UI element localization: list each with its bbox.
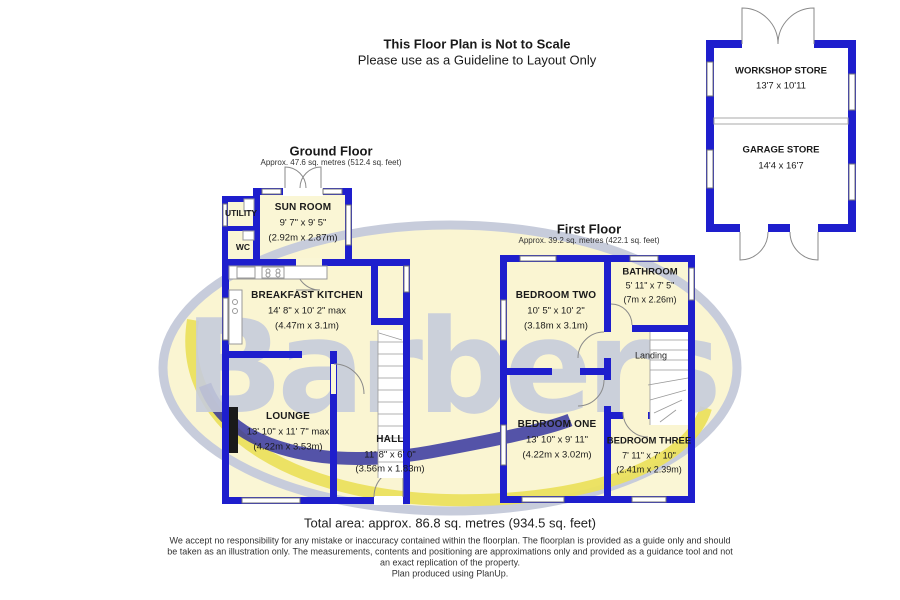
first-floor-title: First Floor xyxy=(557,223,621,236)
page-title: This Floor Plan is Not to Scale xyxy=(383,38,570,51)
room-dims-hall-imp: 11' 8" x 6' 0" xyxy=(364,450,415,460)
room-dims-lounge-met: (4.22m x 3.53m) xyxy=(253,442,322,452)
room-label-garage-store: GARAGE STORE xyxy=(743,145,820,155)
room-dims-sun-room-imp: 9' 7" x 9' 5" xyxy=(280,218,327,228)
room-label-bathroom: BATHROOM xyxy=(622,267,677,277)
total-area: Total area: approx. 86.8 sq. metres (934… xyxy=(304,517,596,530)
room-dims-breakfast-kitchen-met: (4.47m x 3.1m) xyxy=(275,321,339,331)
disclaimer-line-4: Plan produced using PlanUp. xyxy=(392,570,509,579)
room-label-bedroom-one: BEDROOM ONE xyxy=(518,420,597,430)
room-label-bedroom-two: BEDROOM TWO xyxy=(516,291,597,301)
room-dims-bathroom-imp: 5' 11" x 7' 5" xyxy=(626,282,675,291)
room-dims-breakfast-kitchen-imp: 14' 8" x 10' 2" max xyxy=(268,306,346,316)
page-subtitle: Please use as a Guideline to Layout Only xyxy=(358,54,596,67)
room-dims-bedroom-two-met: (3.18m x 3.1m) xyxy=(524,321,588,331)
ground-floor-area: Approx. 47.6 sq. metres (512.4 sq. feet) xyxy=(261,159,402,167)
room-dims-bedroom-two-imp: 10' 5" x 10' 2" xyxy=(527,306,584,316)
room-label-bedroom-three: BEDROOM THREE xyxy=(607,436,691,446)
chimney-breast xyxy=(229,407,238,453)
room-label-lounge: LOUNGE xyxy=(266,412,310,422)
room-dims-lounge-imp: 13' 10" x 11' 7" max xyxy=(247,427,330,437)
floorplan-page: Barbers xyxy=(0,0,900,600)
room-label-utility: UTILITY xyxy=(225,209,257,218)
room-label-wc: WC xyxy=(236,243,250,252)
room-label-breakfast-kitchen: BREAKFAST KITCHEN xyxy=(251,291,363,301)
watermark-text: Barbers xyxy=(184,291,716,443)
room-label-landing: Landing xyxy=(635,352,667,361)
room-dims-bedroom-three-imp: 7' 11" x 7' 10" xyxy=(622,452,676,461)
stud-wall-divider xyxy=(714,118,848,124)
disclaimer-line-1: We accept no responsibility for any mist… xyxy=(170,537,731,546)
disclaimer-line-3: an exact replication of the property. xyxy=(380,559,520,568)
room-dims-garage-store: 14'4 x 16'7 xyxy=(758,161,803,171)
room-dims-bedroom-one-imp: 13' 10" x 9' 11" xyxy=(526,435,588,445)
outbuilding-plan xyxy=(706,8,856,260)
room-dims-hall-met: (3.56m x 1.83m) xyxy=(355,464,424,474)
ground-floor-title: Ground Floor xyxy=(289,145,372,158)
staircase-first xyxy=(648,332,688,425)
first-floor-area: Approx. 39.2 sq. metres (422.1 sq. feet) xyxy=(519,237,660,245)
room-label-hall: HALL xyxy=(376,435,403,445)
disclaimer-line-2: be taken as an illustration only. The me… xyxy=(167,548,733,557)
room-dims-sun-room-met: (2.92m x 2.87m) xyxy=(268,233,337,243)
room-label-sun-room: SUN ROOM xyxy=(275,203,332,213)
room-dims-bedroom-one-met: (4.22m x 3.02m) xyxy=(522,450,591,460)
room-dims-workshop-store: 13'7 x 10'11 xyxy=(756,81,806,91)
room-dims-bedroom-three-met: (2.41m x 2.39m) xyxy=(616,466,682,475)
room-label-workshop-store: WORKSHOP STORE xyxy=(735,66,827,76)
room-dims-bathroom-met: (7m x 2.26m) xyxy=(623,296,676,305)
